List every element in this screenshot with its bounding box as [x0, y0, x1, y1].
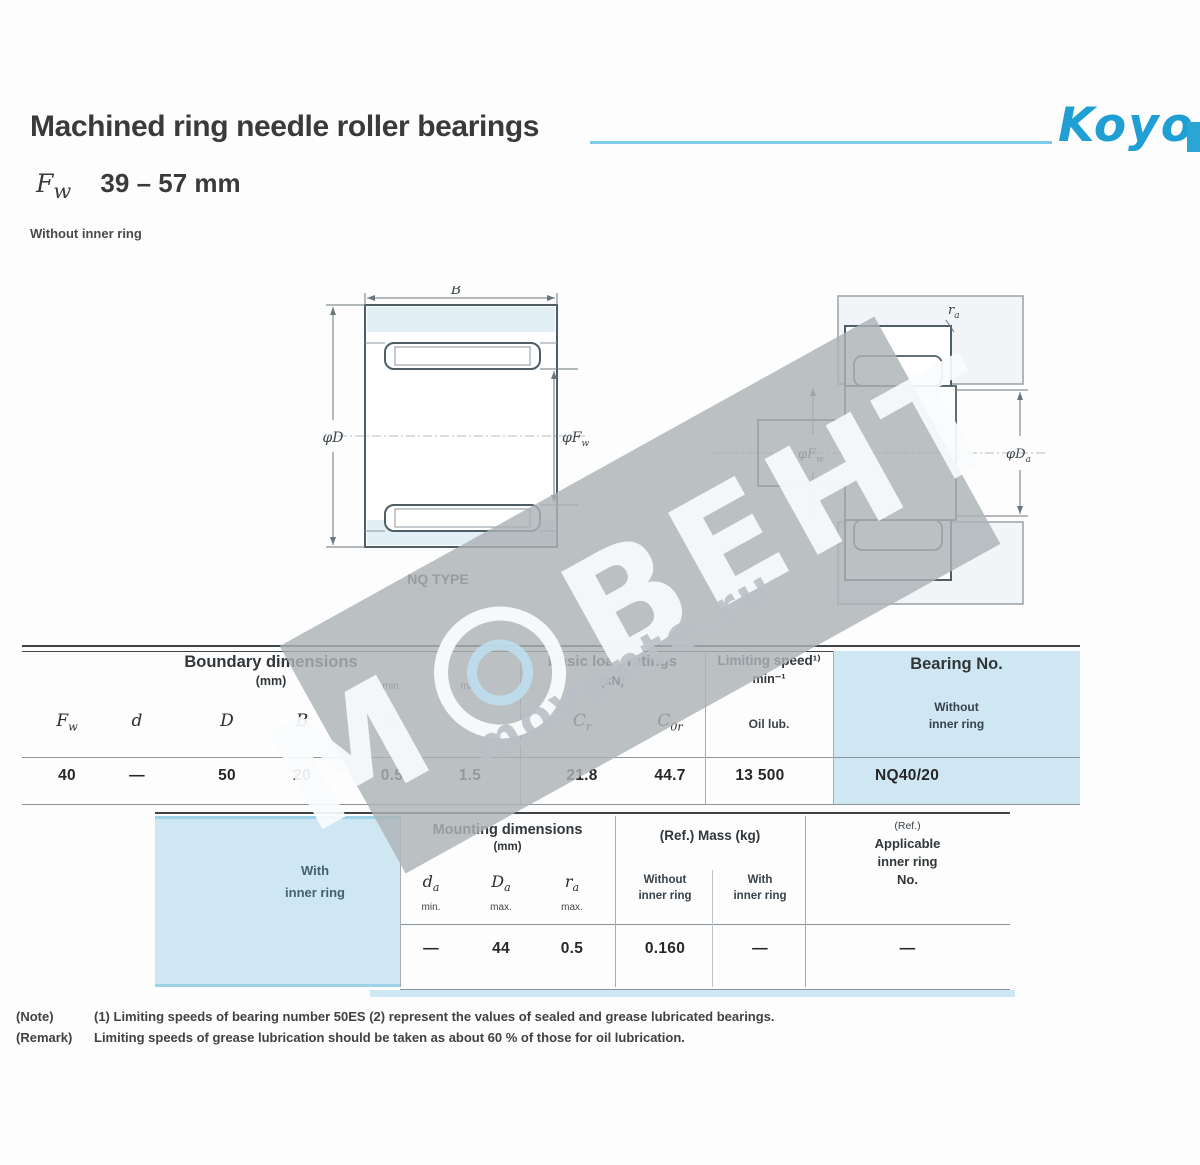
- mounting-figure: ra φFw φDa: [698, 288, 1058, 608]
- group-speed-unit: min⁻¹: [705, 671, 833, 686]
- Da-note: max.: [471, 902, 531, 913]
- value-r1s: 1.5: [440, 767, 500, 785]
- mass-with-line1: With: [712, 874, 808, 886]
- bearing-section-figure: B φD φFw NQ TYPE: [288, 286, 608, 606]
- koyo-logo: Koyo: [1058, 98, 1195, 153]
- col-sym-cr: Cr: [552, 711, 612, 733]
- value-da: —: [401, 940, 461, 958]
- value-speed: 13 500: [705, 767, 815, 785]
- group-boundary-title: Boundary dimensions: [22, 653, 520, 672]
- variant-label: Without inner ring: [30, 226, 142, 241]
- value-c0r: 44.7: [640, 767, 700, 785]
- col-sym-Da: Da: [471, 872, 531, 894]
- col-sym-d: d: [107, 711, 167, 733]
- group-bearing-title: Bearing No.: [833, 655, 1080, 674]
- col-oil-lub: Oil lub.: [705, 717, 833, 731]
- value-bearing-no: NQ40/20: [875, 767, 1075, 785]
- dim-Da-label: φDa: [1006, 447, 1031, 465]
- remark-text: Limiting speeds of grease lubrication sh…: [94, 1027, 1188, 1048]
- ref-line3: inner ring: [805, 854, 1010, 869]
- value-ra: 0.5: [542, 940, 602, 958]
- note-text: (1) Limiting speeds of bearing number 50…: [94, 1006, 1188, 1027]
- col-sym-fw: Fw: [37, 711, 97, 733]
- bearing-sub-line1: Without: [833, 700, 1080, 714]
- size-range-value: 39 – 57 mm: [100, 168, 240, 198]
- mass-without-line1: Without: [617, 874, 713, 886]
- value-cr: 21.8: [552, 767, 612, 785]
- dim-Fw-label: φFw: [562, 430, 590, 449]
- group-load-title: Basic load ratings: [520, 653, 705, 670]
- brand-trademark: [1187, 122, 1200, 152]
- value-fw: 40: [37, 767, 97, 785]
- remark-label: (Remark): [16, 1027, 94, 1048]
- r1s-min-note: min.: [440, 681, 500, 692]
- group-mounting-title: Mounting dimensions: [400, 822, 615, 838]
- rs-min-note: min.: [362, 681, 422, 692]
- value-rs: 0.5: [362, 767, 422, 785]
- spec-table: Boundary dimensions (mm) Basic load rati…: [22, 645, 1080, 805]
- value-D: 50: [197, 767, 257, 785]
- mass-without-line2: inner ring: [617, 890, 713, 902]
- value-inner-ring-no: —: [805, 940, 1010, 958]
- group-load-unit: (kN): [520, 674, 705, 688]
- col-sym-B: B: [272, 711, 332, 733]
- size-range: Fw 39 – 57 mm: [36, 168, 241, 203]
- with-inner-ring-cell: With inner ring: [155, 816, 400, 987]
- dim-D-label: φD: [322, 430, 343, 446]
- value-B: 20: [272, 767, 332, 785]
- ref-line1: (Ref.): [805, 820, 1010, 832]
- mass-with-line2: inner ring: [712, 890, 808, 902]
- ref-line2: Applicable: [805, 836, 1010, 851]
- with-inner-ring-line1: With: [215, 863, 415, 878]
- fw-symbol: Fw: [36, 169, 71, 198]
- remark-row: (Remark) Limiting speeds of grease lubri…: [16, 1027, 1188, 1048]
- note-row: (Note) (1) Limiting speeds of bearing nu…: [16, 1006, 1188, 1027]
- value-mass-without: 0.160: [617, 940, 713, 958]
- da-note: min.: [401, 902, 461, 913]
- catalog-page: Machined ring needle roller bearings Koy…: [0, 0, 1200, 1165]
- table-underline-accent: [370, 990, 1015, 997]
- figure-caption: NQ TYPE: [407, 571, 468, 587]
- value-Da: 44: [471, 940, 531, 958]
- value-d: —: [107, 767, 167, 785]
- col-sym-rs: rs: [362, 711, 422, 733]
- footnotes: (Note) (1) Limiting speeds of bearing nu…: [16, 1006, 1188, 1049]
- col-sym-D: D: [197, 711, 257, 733]
- group-speed-title: Limiting speed¹⁾: [705, 653, 833, 669]
- mounting-table: With inner ring Mounting dimensions (mm)…: [155, 812, 1010, 990]
- bearing-sub-line2: inner ring: [833, 717, 1080, 731]
- group-mass-title: (Ref.) Mass (kg): [615, 828, 805, 843]
- col-sym-c0r: C0r: [640, 711, 700, 733]
- ra-note: max.: [542, 902, 602, 913]
- dim-B-label: B: [450, 286, 461, 298]
- ref-line4: No.: [805, 872, 1010, 887]
- title-rule: [590, 141, 1052, 144]
- value-mass-with: —: [712, 940, 808, 958]
- col-sym-r1s: r1s: [440, 711, 500, 733]
- page-title: Machined ring needle roller bearings: [30, 110, 539, 144]
- group-mounting-unit: (mm): [400, 841, 615, 853]
- with-inner-ring-line2: inner ring: [215, 885, 415, 900]
- note-label: (Note): [16, 1006, 94, 1027]
- col-sym-da: da: [401, 872, 461, 894]
- col-sym-ra: ra: [542, 872, 602, 894]
